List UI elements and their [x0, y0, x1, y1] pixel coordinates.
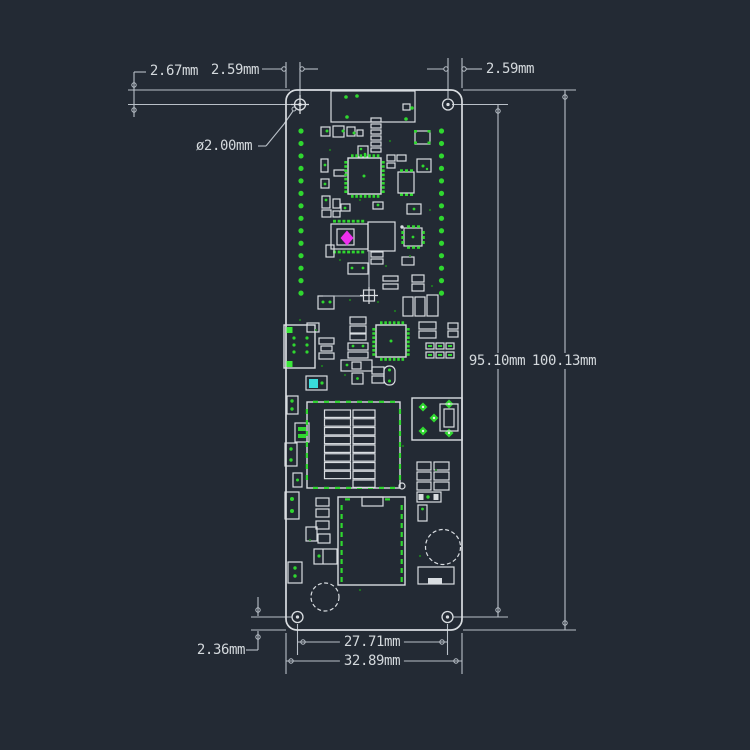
- dim-label-hole-span-horizontal: 27.71mm: [340, 634, 404, 650]
- antenna-hole: [311, 583, 339, 611]
- battery-holder: [338, 497, 405, 585]
- qfn-chip-2: [400, 225, 425, 249]
- bottom-components: [306, 498, 461, 611]
- dim-label-hole-inset-left: 2.59mm: [211, 63, 259, 77]
- gps-module: [306, 401, 405, 489]
- power-chip: [372, 321, 409, 361]
- mid-components: [318, 252, 424, 309]
- polarity-marker: [341, 231, 354, 246]
- coin-cell-holder: [426, 530, 461, 565]
- dim-label-hole-span-vertical: 95.10mm: [465, 353, 529, 369]
- dim-label-top-offset: 2.67mm: [150, 64, 198, 78]
- pin-pads-right: [439, 128, 444, 295]
- left-edge-components: [285, 396, 309, 583]
- pad-table: [417, 462, 449, 521]
- rf-module: [326, 220, 395, 257]
- pcb-dimension-drawing: 2.67mm 2.59mm ø2.00mm 2.59mm 95.10mm 100…: [0, 0, 750, 750]
- via-dots: [299, 140, 437, 591]
- board-outline: [286, 90, 462, 630]
- dim-label-board-height: 100.13mm: [528, 353, 600, 369]
- tactile-button: [412, 398, 462, 440]
- esp32-chip: [344, 154, 384, 198]
- cyan-component: [306, 376, 327, 390]
- dim-label-hole-diameter: ø2.00mm: [196, 139, 252, 153]
- dim-label-bottom-offset: 2.36mm: [197, 643, 245, 657]
- dim-label-hole-inset-right: 2.59mm: [486, 62, 534, 76]
- dim-label-board-width: 32.89mm: [340, 653, 404, 669]
- usb-connector: [331, 91, 415, 122]
- pin-pads-left: [298, 128, 303, 295]
